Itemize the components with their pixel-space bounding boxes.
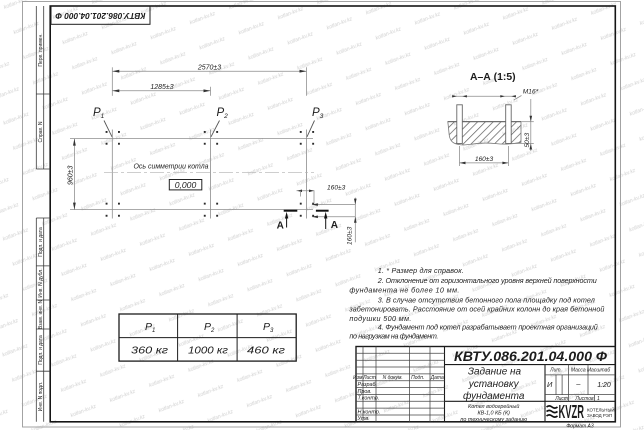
svg-text:по техническому заданию: по техническому заданию [460, 417, 527, 423]
svg-text:1. * Размер для справок.: 1. * Размер для справок. [378, 266, 464, 275]
svg-text:4. Фундамент под котел разраба: 4. Фундамент под котел разрабатывает про… [378, 322, 598, 331]
svg-text:Лист: Лист [362, 375, 376, 381]
svg-text:Разраб.: Разраб. [358, 382, 378, 388]
svg-text:по нагрузкам на фундамент.: по нагрузкам на фундамент. [349, 332, 438, 341]
svg-text:Масштаб: Масштаб [587, 368, 611, 374]
svg-text:0,000: 0,000 [175, 180, 197, 190]
svg-text:Т.контр.: Т.контр. [358, 396, 380, 402]
svg-text:1000 кг: 1000 кг [188, 346, 228, 357]
svg-text:160±3: 160±3 [347, 226, 354, 245]
svg-text:960±3: 960±3 [68, 165, 75, 185]
svg-text:3. В случае отсутствия бетонно: 3. В случае отсутствия бетонного пола пл… [378, 295, 595, 304]
svg-text:забетонировать. Расстояние от: забетонировать. Расстояние от осей крайн… [348, 304, 604, 313]
svg-text:50±3: 50±3 [524, 133, 531, 148]
svg-text:КВТУ.086.201.04.000 Ф: КВТУ.086.201.04.000 Ф [454, 348, 607, 364]
svg-text:460 кг: 460 кг [247, 346, 285, 357]
svg-text:N докум.: N докум. [383, 375, 403, 381]
svg-text:1285±3: 1285±3 [150, 84, 173, 91]
svg-text:фундамента не более 10 мм.: фундамента не более 10 мм. [349, 286, 459, 295]
svg-text:–: – [575, 379, 581, 388]
svg-text:Дата: Дата [430, 375, 444, 381]
svg-text:1:20: 1:20 [597, 382, 611, 389]
svg-text:360 кг: 360 кг [131, 346, 168, 357]
svg-text:А: А [331, 220, 338, 231]
svg-text:КВ-1,0 КБ (К): КВ-1,0 КБ (К) [477, 411, 510, 417]
svg-text:1: 1 [597, 396, 600, 402]
svg-text:Пров.: Пров. [358, 389, 372, 395]
svg-text:КВТУ.086.201.04.000 Ф: КВТУ.086.201.04.000 Ф [55, 11, 145, 21]
svg-text:Масса: Масса [571, 368, 586, 374]
svg-text:160±3: 160±3 [475, 156, 494, 163]
svg-text:Задание на: Задание на [468, 366, 522, 377]
svg-text:Лит.: Лит. [549, 368, 562, 374]
svg-text:Инв. N подл.: Инв. N подл. [38, 382, 44, 411]
svg-text:ЗАВОД РЭП: ЗАВОД РЭП [587, 413, 612, 418]
svg-text:160±3: 160±3 [327, 185, 346, 192]
svg-text:КОТЕЛЬНЫЙ: КОТЕЛЬНЫЙ [587, 408, 615, 413]
svg-text:Котел водогрейный: Котел водогрейный [468, 403, 519, 410]
svg-text:Подп.: Подп. [411, 375, 424, 381]
svg-text:Утв.: Утв. [357, 416, 370, 422]
svg-text:фундамента: фундамента [463, 390, 525, 402]
svg-text:Ось симметрии котла: Ось симметрии котла [134, 162, 209, 171]
svg-text:Инв. N дубл.: Инв. N дубл. [38, 268, 44, 297]
svg-text:А–А (1:5): А–А (1:5) [470, 72, 516, 83]
svg-text:Формат А3: Формат А3 [566, 423, 594, 429]
svg-text:И: И [547, 380, 553, 389]
svg-text:Подп. и дата: Подп. и дата [38, 227, 44, 257]
svg-text:А: А [277, 220, 284, 231]
svg-text:Перв. примен.: Перв. примен. [38, 33, 44, 66]
svg-text:М16*: М16* [523, 89, 539, 96]
svg-text:KVZR: KVZR [559, 402, 585, 422]
svg-text:установку: установку [468, 379, 520, 390]
svg-text:Подп. и дата: Подп. и дата [38, 335, 44, 365]
svg-text:Взам. инв. N: Взам. инв. N [38, 300, 44, 330]
svg-text:2570±3: 2570±3 [197, 64, 221, 71]
svg-text:Справ. N: Справ. N [38, 121, 44, 142]
svg-text:Н.контр.: Н.контр. [358, 409, 381, 415]
svg-text:2. Отклонение от горизонтально: 2. Отклонение от горизонтального уровня … [377, 276, 597, 285]
